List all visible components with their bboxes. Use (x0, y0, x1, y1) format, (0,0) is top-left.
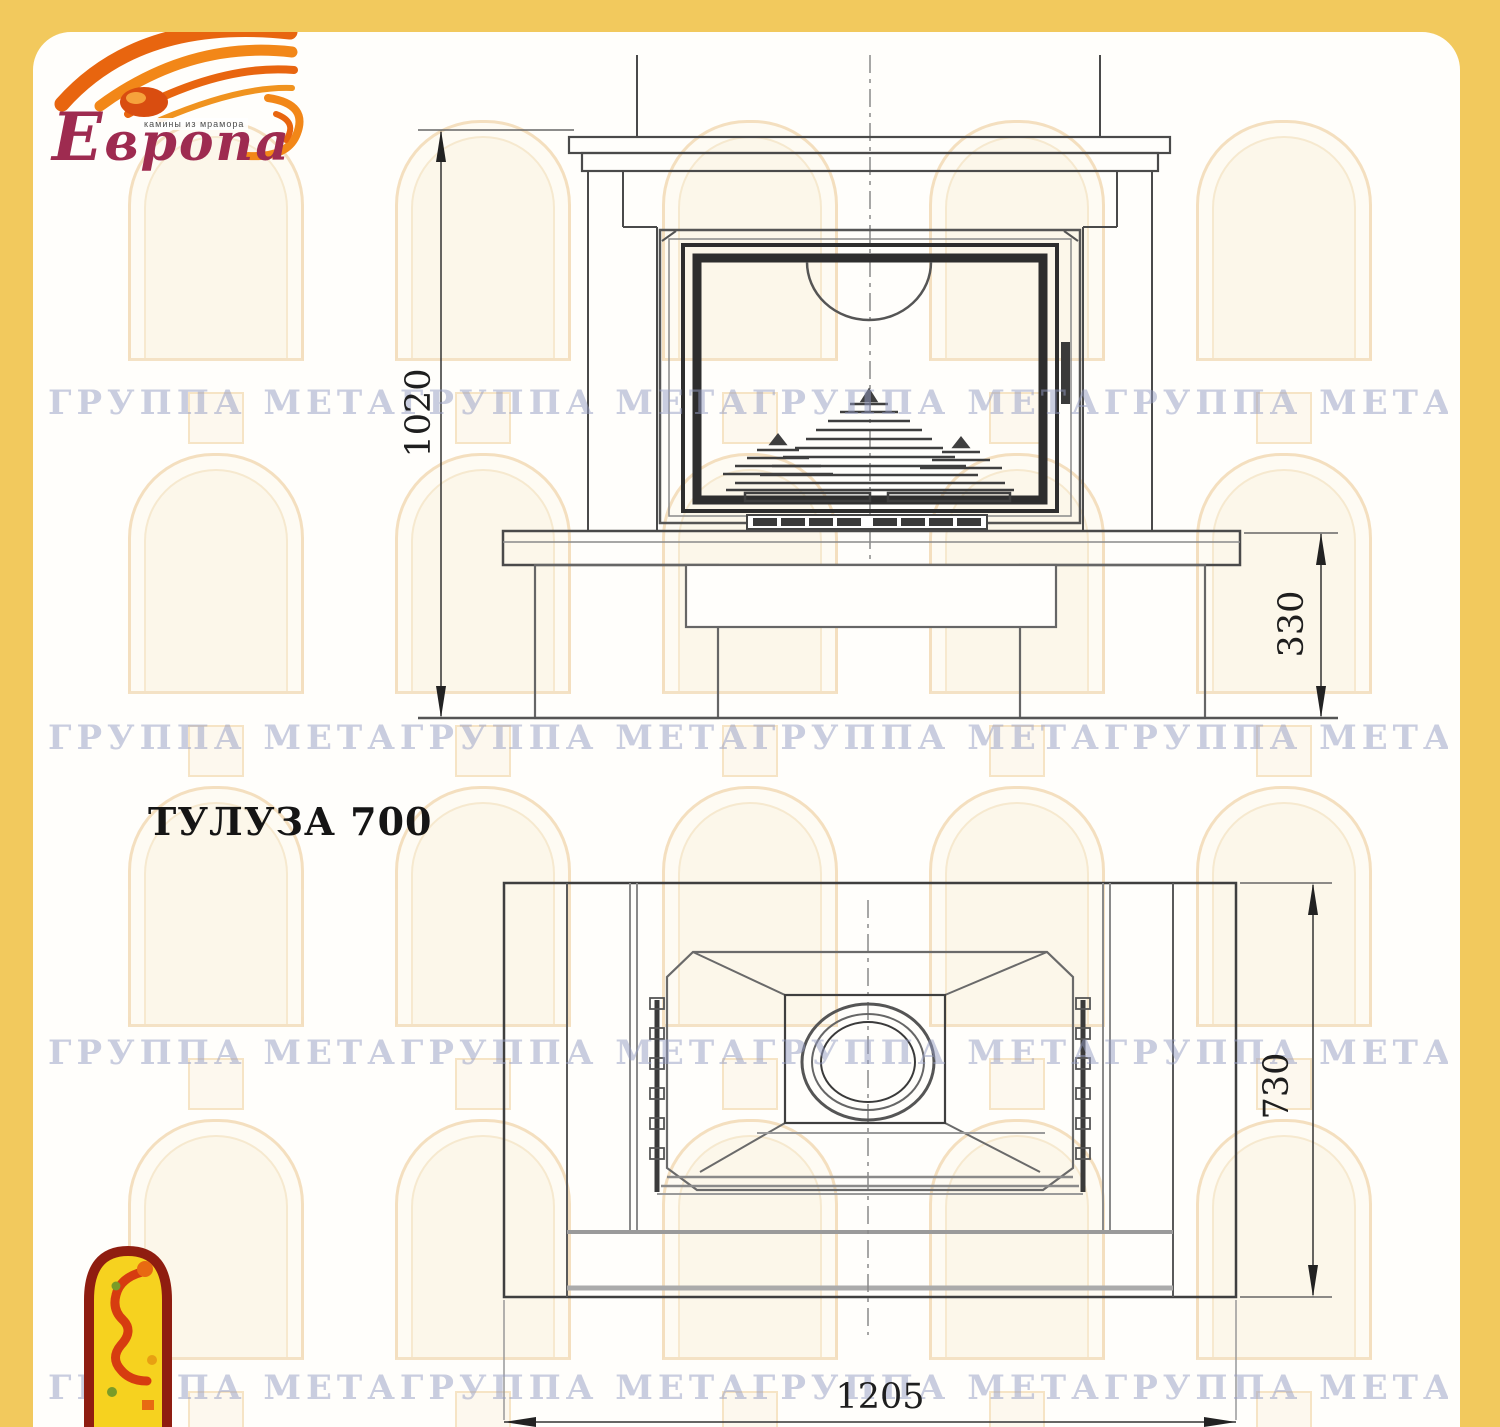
base-pedestal (535, 565, 1205, 718)
page-frame-left (0, 0, 33, 1427)
page-frame-top (0, 0, 1500, 32)
catalog-page: Европа камины из мрамора ТУЛУЗА 700 (0, 0, 1500, 1427)
door-arch (807, 262, 931, 320)
ash-grille (747, 515, 987, 529)
dimension-label-base-height: 330 (1272, 559, 1312, 689)
firebox-insert-top (650, 952, 1090, 1194)
brand-name: Европа (52, 98, 291, 176)
firebox-door (683, 245, 1070, 511)
page-frame-right (1460, 0, 1500, 1427)
meta-emblem-icon (82, 1242, 174, 1427)
brand-tagline: камины из мрамора (140, 118, 248, 130)
door-handle (1061, 342, 1070, 404)
plan-view-drawing (470, 870, 1360, 1427)
front-view-drawing (390, 40, 1350, 740)
dimension-label-width: 1205 (815, 1377, 945, 1417)
model-title: ТУЛУЗА 700 (148, 799, 432, 844)
fire-logs (723, 390, 1014, 501)
chimney-flue-lines (637, 55, 1100, 137)
plan-outline (504, 883, 1236, 1297)
height-dimension (418, 130, 574, 718)
hearth-slab (503, 531, 1240, 565)
dimension-label-height: 1020 (399, 348, 439, 478)
dimension-label-depth: 730 (1257, 1021, 1297, 1151)
